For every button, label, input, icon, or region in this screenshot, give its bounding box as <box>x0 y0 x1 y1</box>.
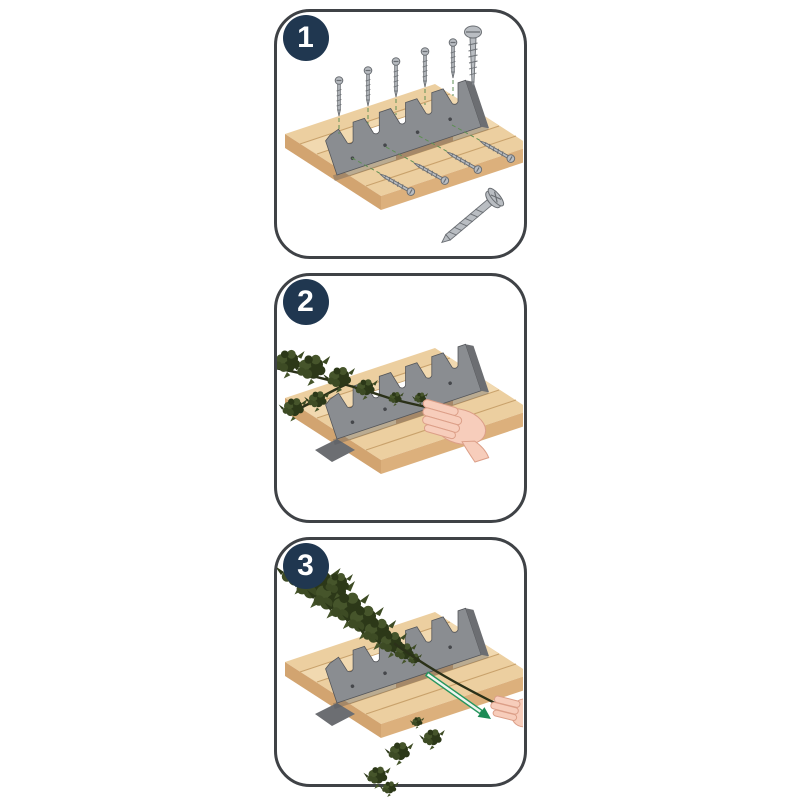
fallen-leaf-clump <box>419 729 445 750</box>
fallen-leaf-clump <box>379 781 398 797</box>
step-number-badge: 2 <box>283 279 329 325</box>
step-number-badge: 3 <box>283 543 329 589</box>
fallen-leaf-clump <box>384 742 413 765</box>
instruction-sheet: 1 <box>0 0 800 787</box>
step-panel-3: 3 <box>274 537 527 787</box>
step-panel-1: 1 <box>274 9 527 259</box>
large-screw-vertical-icon <box>464 26 481 89</box>
small-screw-icon <box>335 77 343 116</box>
step-number: 1 <box>297 21 314 55</box>
step-panel-2: 2 <box>274 273 527 523</box>
small-screw-icon <box>392 58 400 97</box>
step-number: 2 <box>297 285 314 319</box>
small-screw-icon <box>364 67 372 106</box>
step-number-badge: 1 <box>283 15 329 61</box>
step-number: 3 <box>297 549 314 583</box>
small-screw-icon <box>449 39 457 78</box>
large-screw-diagonal-icon <box>434 186 505 251</box>
small-screw-icon <box>421 48 429 87</box>
